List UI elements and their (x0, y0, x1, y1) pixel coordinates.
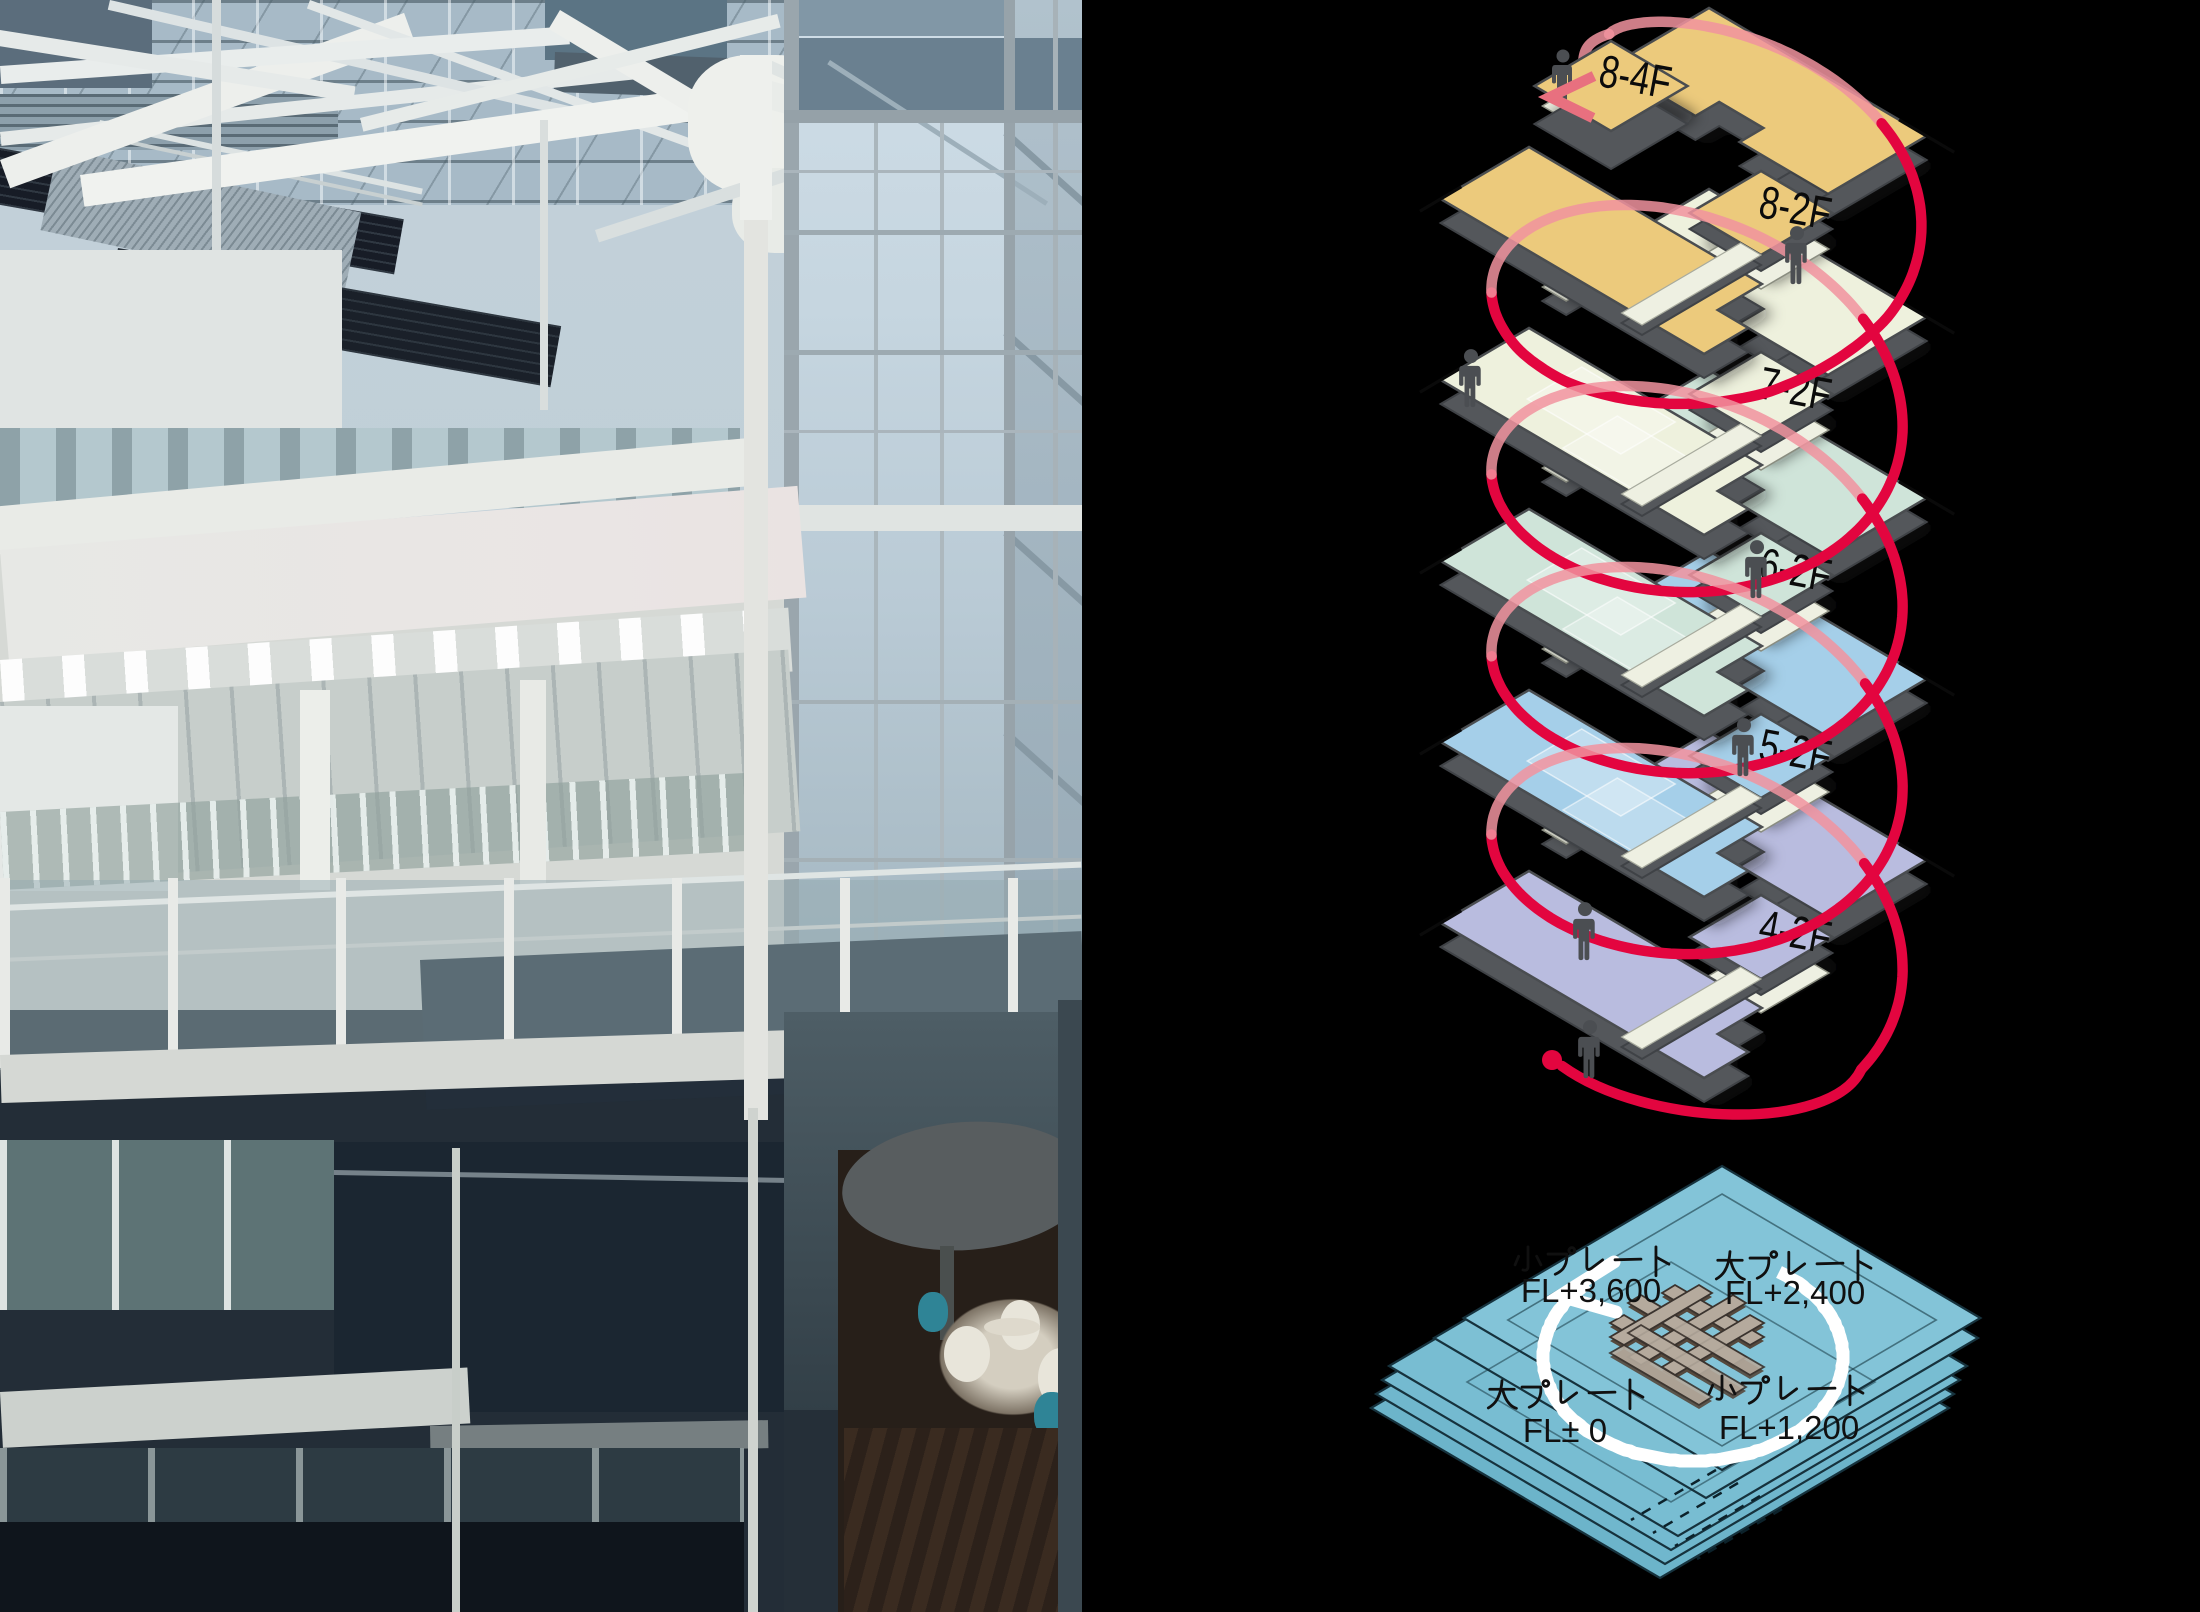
svg-text:FL± 0: FL± 0 (1523, 1412, 1607, 1449)
svg-text:FL+1,200: FL+1,200 (1719, 1409, 1859, 1446)
svg-text:FL+2,400: FL+2,400 (1725, 1274, 1865, 1311)
svg-text:FL+3,600: FL+3,600 (1521, 1272, 1661, 1309)
